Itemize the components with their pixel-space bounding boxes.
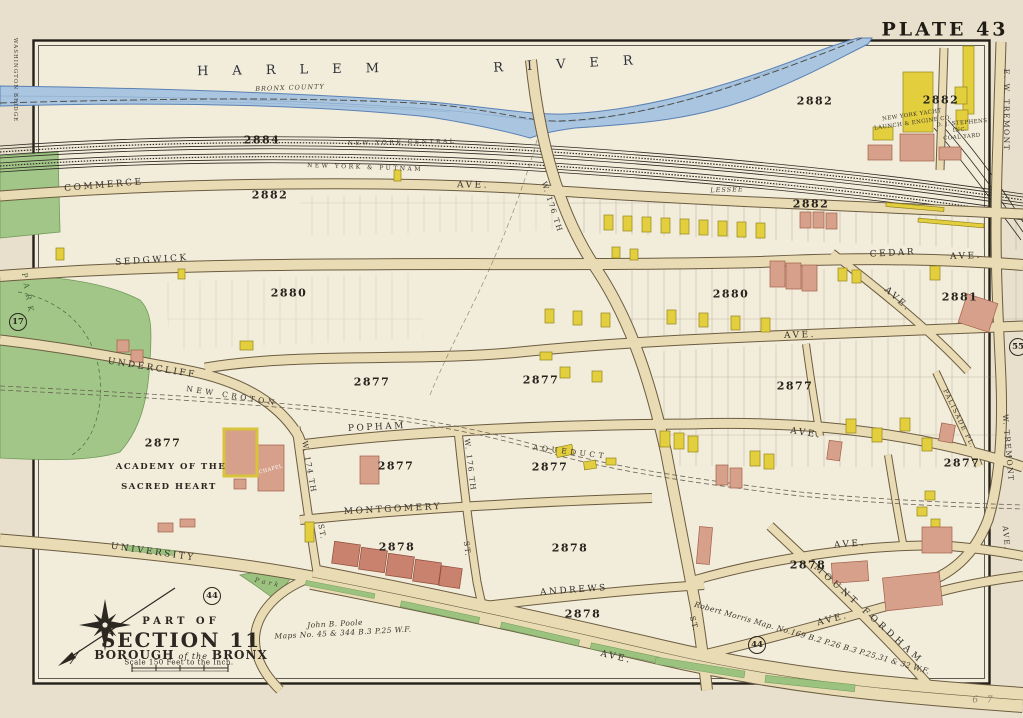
block-number: 2880 — [271, 288, 308, 299]
academy-label-line1: ACADEMY OF THE — [116, 463, 226, 472]
block-number: 2881 — [942, 292, 979, 303]
block-number: 2882 — [797, 96, 834, 107]
street-label-w176-st: ST. — [462, 541, 471, 558]
river-name-harlem: HARLEM — [197, 62, 403, 79]
street-label-tremont-ave: AVE. — [1001, 526, 1011, 551]
street-label-w174-st: ST. — [317, 524, 327, 541]
block-number: 2877 — [944, 458, 981, 469]
block-number: 2877 — [532, 462, 569, 473]
block-number: 2877 — [354, 377, 391, 388]
block-number: 2877 — [523, 375, 560, 386]
academy-label-line2: SACRED HEART — [121, 483, 217, 492]
block-number: 2882 — [793, 199, 830, 210]
title-section: SECTION 11 — [101, 630, 261, 650]
block-number: 2878 — [552, 543, 589, 554]
block-number: 2877 — [777, 381, 814, 392]
page-note: 6 7 — [972, 697, 995, 706]
railroad-lessee-label: LESSEE — [710, 186, 744, 194]
block-number: 2878 — [790, 560, 827, 571]
atlas-plate-map: PLATE 43 HARLEM RIVER BRONX COUNTY NEW Y… — [0, 0, 1023, 718]
street-label-mid-ave: AVE. — [784, 331, 816, 341]
block-number: 2877 — [145, 438, 182, 449]
block-number: 2884 — [244, 135, 281, 146]
block-number: 2882 — [252, 190, 289, 201]
section-circle-17: 17 — [9, 313, 27, 331]
street-label-tremont-top: E. W. TREMONT — [1002, 69, 1010, 151]
block-number: 2877 — [378, 461, 415, 472]
title-scale-note: Scale 150 Feet to the Inch. — [124, 660, 233, 667]
washington-bridge-label: WASHINGTON BRIDGE — [11, 38, 17, 122]
block-number: 2878 — [379, 542, 416, 553]
block-number: 2878 — [565, 609, 602, 620]
street-label-commerce-ave: AVE. — [457, 181, 489, 191]
academy-building — [224, 429, 257, 476]
plate-title: PLATE 43 — [881, 21, 1008, 40]
section-circle-44-right: 44 — [748, 636, 766, 654]
title-part-of: PART OF — [142, 617, 219, 627]
street-label-cedar-ave: AVE. — [950, 252, 982, 262]
block-number: 2880 — [713, 289, 750, 300]
section-circle-55: 55 — [1009, 338, 1023, 356]
section-circle-44-left: 44 — [203, 587, 221, 605]
block-number: 2882 — [923, 95, 960, 106]
